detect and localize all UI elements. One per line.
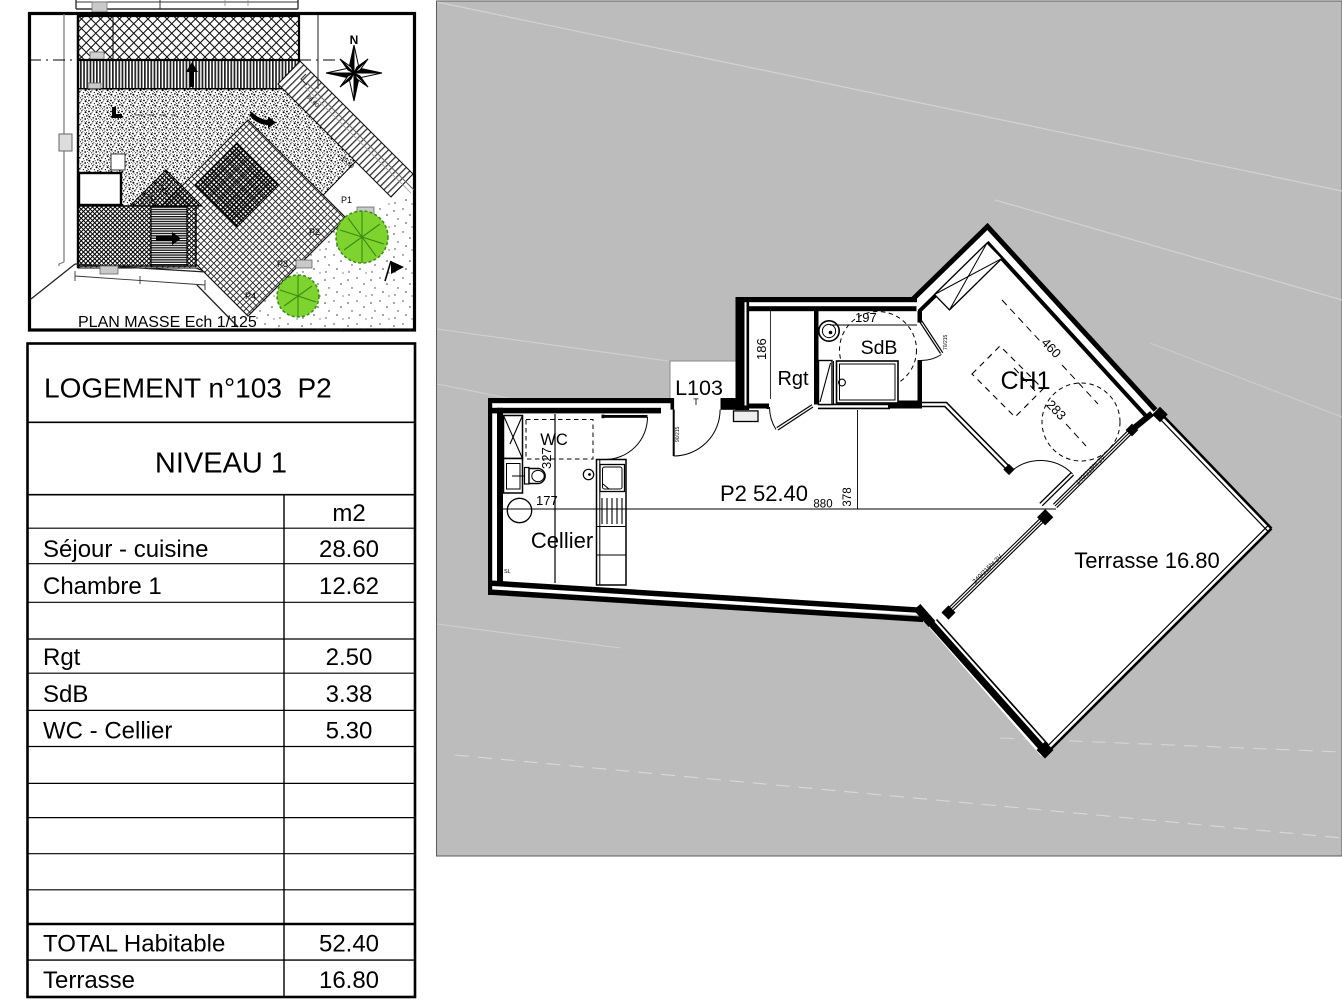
svg-text:16.80: 16.80 (319, 967, 379, 994)
svg-text:Rgt: Rgt (777, 368, 809, 390)
svg-text:m2: m2 (332, 500, 365, 527)
svg-text:378: 378 (842, 487, 854, 506)
svg-text:SdB: SdB (861, 337, 898, 359)
svg-text:Séjour - cuisine: Séjour - cuisine (43, 536, 208, 563)
svg-text:880: 880 (813, 499, 832, 511)
svg-text:Rgt: Rgt (43, 644, 81, 671)
svg-text:P3: P3 (277, 259, 288, 269)
svg-text:90/215: 90/215 (675, 426, 681, 442)
svg-text:P1: P1 (341, 195, 352, 205)
svg-text:P4: P4 (245, 291, 256, 301)
svg-text:NIVEAU 1: NIVEAU 1 (155, 448, 287, 480)
svg-text:28.60: 28.60 (319, 536, 379, 563)
svg-text:12.62: 12.62 (319, 573, 379, 600)
svg-text:WC: WC (540, 431, 568, 449)
svg-text:Terrasse: Terrasse (43, 967, 135, 994)
svg-text:LOGEMENT n°103 P2: LOGEMENT n°103 P2 (44, 373, 332, 404)
svg-text:P2: P2 (309, 227, 320, 237)
svg-text:L103: L103 (675, 376, 723, 400)
svg-text:186: 186 (754, 338, 769, 360)
svg-text:Terrasse 16.80: Terrasse 16.80 (1074, 548, 1220, 573)
svg-text:TOTAL Habitable: TOTAL Habitable (43, 931, 225, 958)
svg-text:T: T (693, 397, 699, 407)
svg-text:70/215: 70/215 (943, 334, 949, 350)
svg-text:WC - Cellier: WC - Cellier (43, 718, 172, 745)
svg-text:PLAN MASSE Ech 1/125: PLAN MASSE Ech 1/125 (78, 314, 257, 331)
svg-text:52.40: 52.40 (319, 931, 379, 958)
svg-text:3.38: 3.38 (326, 681, 373, 708)
svg-text:N: N (350, 33, 359, 47)
svg-text:Cellier: Cellier (531, 528, 593, 553)
svg-text:CH1: CH1 (1000, 367, 1050, 395)
svg-text:5.30: 5.30 (326, 718, 373, 745)
svg-text:2.50: 2.50 (326, 644, 373, 671)
svg-text:177: 177 (536, 493, 558, 508)
svg-text:Chambre 1: Chambre 1 (43, 573, 162, 600)
svg-text:SL: SL (504, 569, 511, 575)
svg-text:P2 52.40: P2 52.40 (720, 481, 808, 506)
svg-text:SdB: SdB (43, 681, 88, 708)
svg-text:327: 327 (539, 447, 554, 469)
